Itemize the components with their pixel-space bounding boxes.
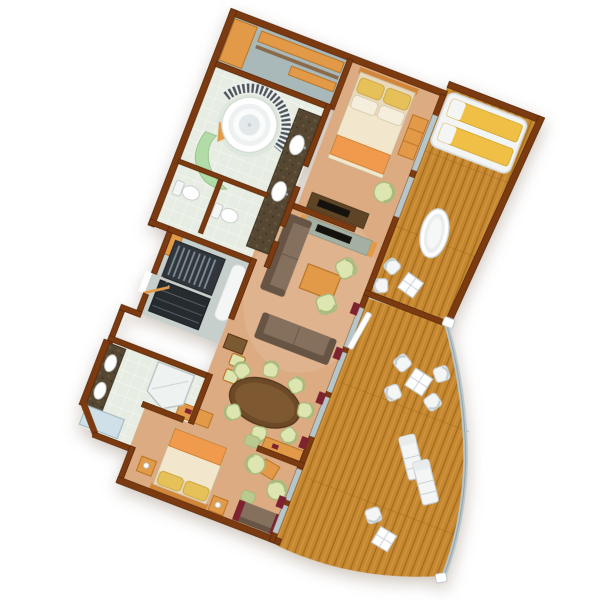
railing-end-cap-tip — [435, 572, 447, 583]
dining-chair — [262, 361, 279, 379]
floor-plan-image — [0, 0, 600, 600]
floor-plan-svg — [0, 0, 600, 600]
suite-plan — [57, 0, 600, 600]
dining-chair — [297, 402, 315, 419]
veranda-chair — [374, 279, 388, 293]
